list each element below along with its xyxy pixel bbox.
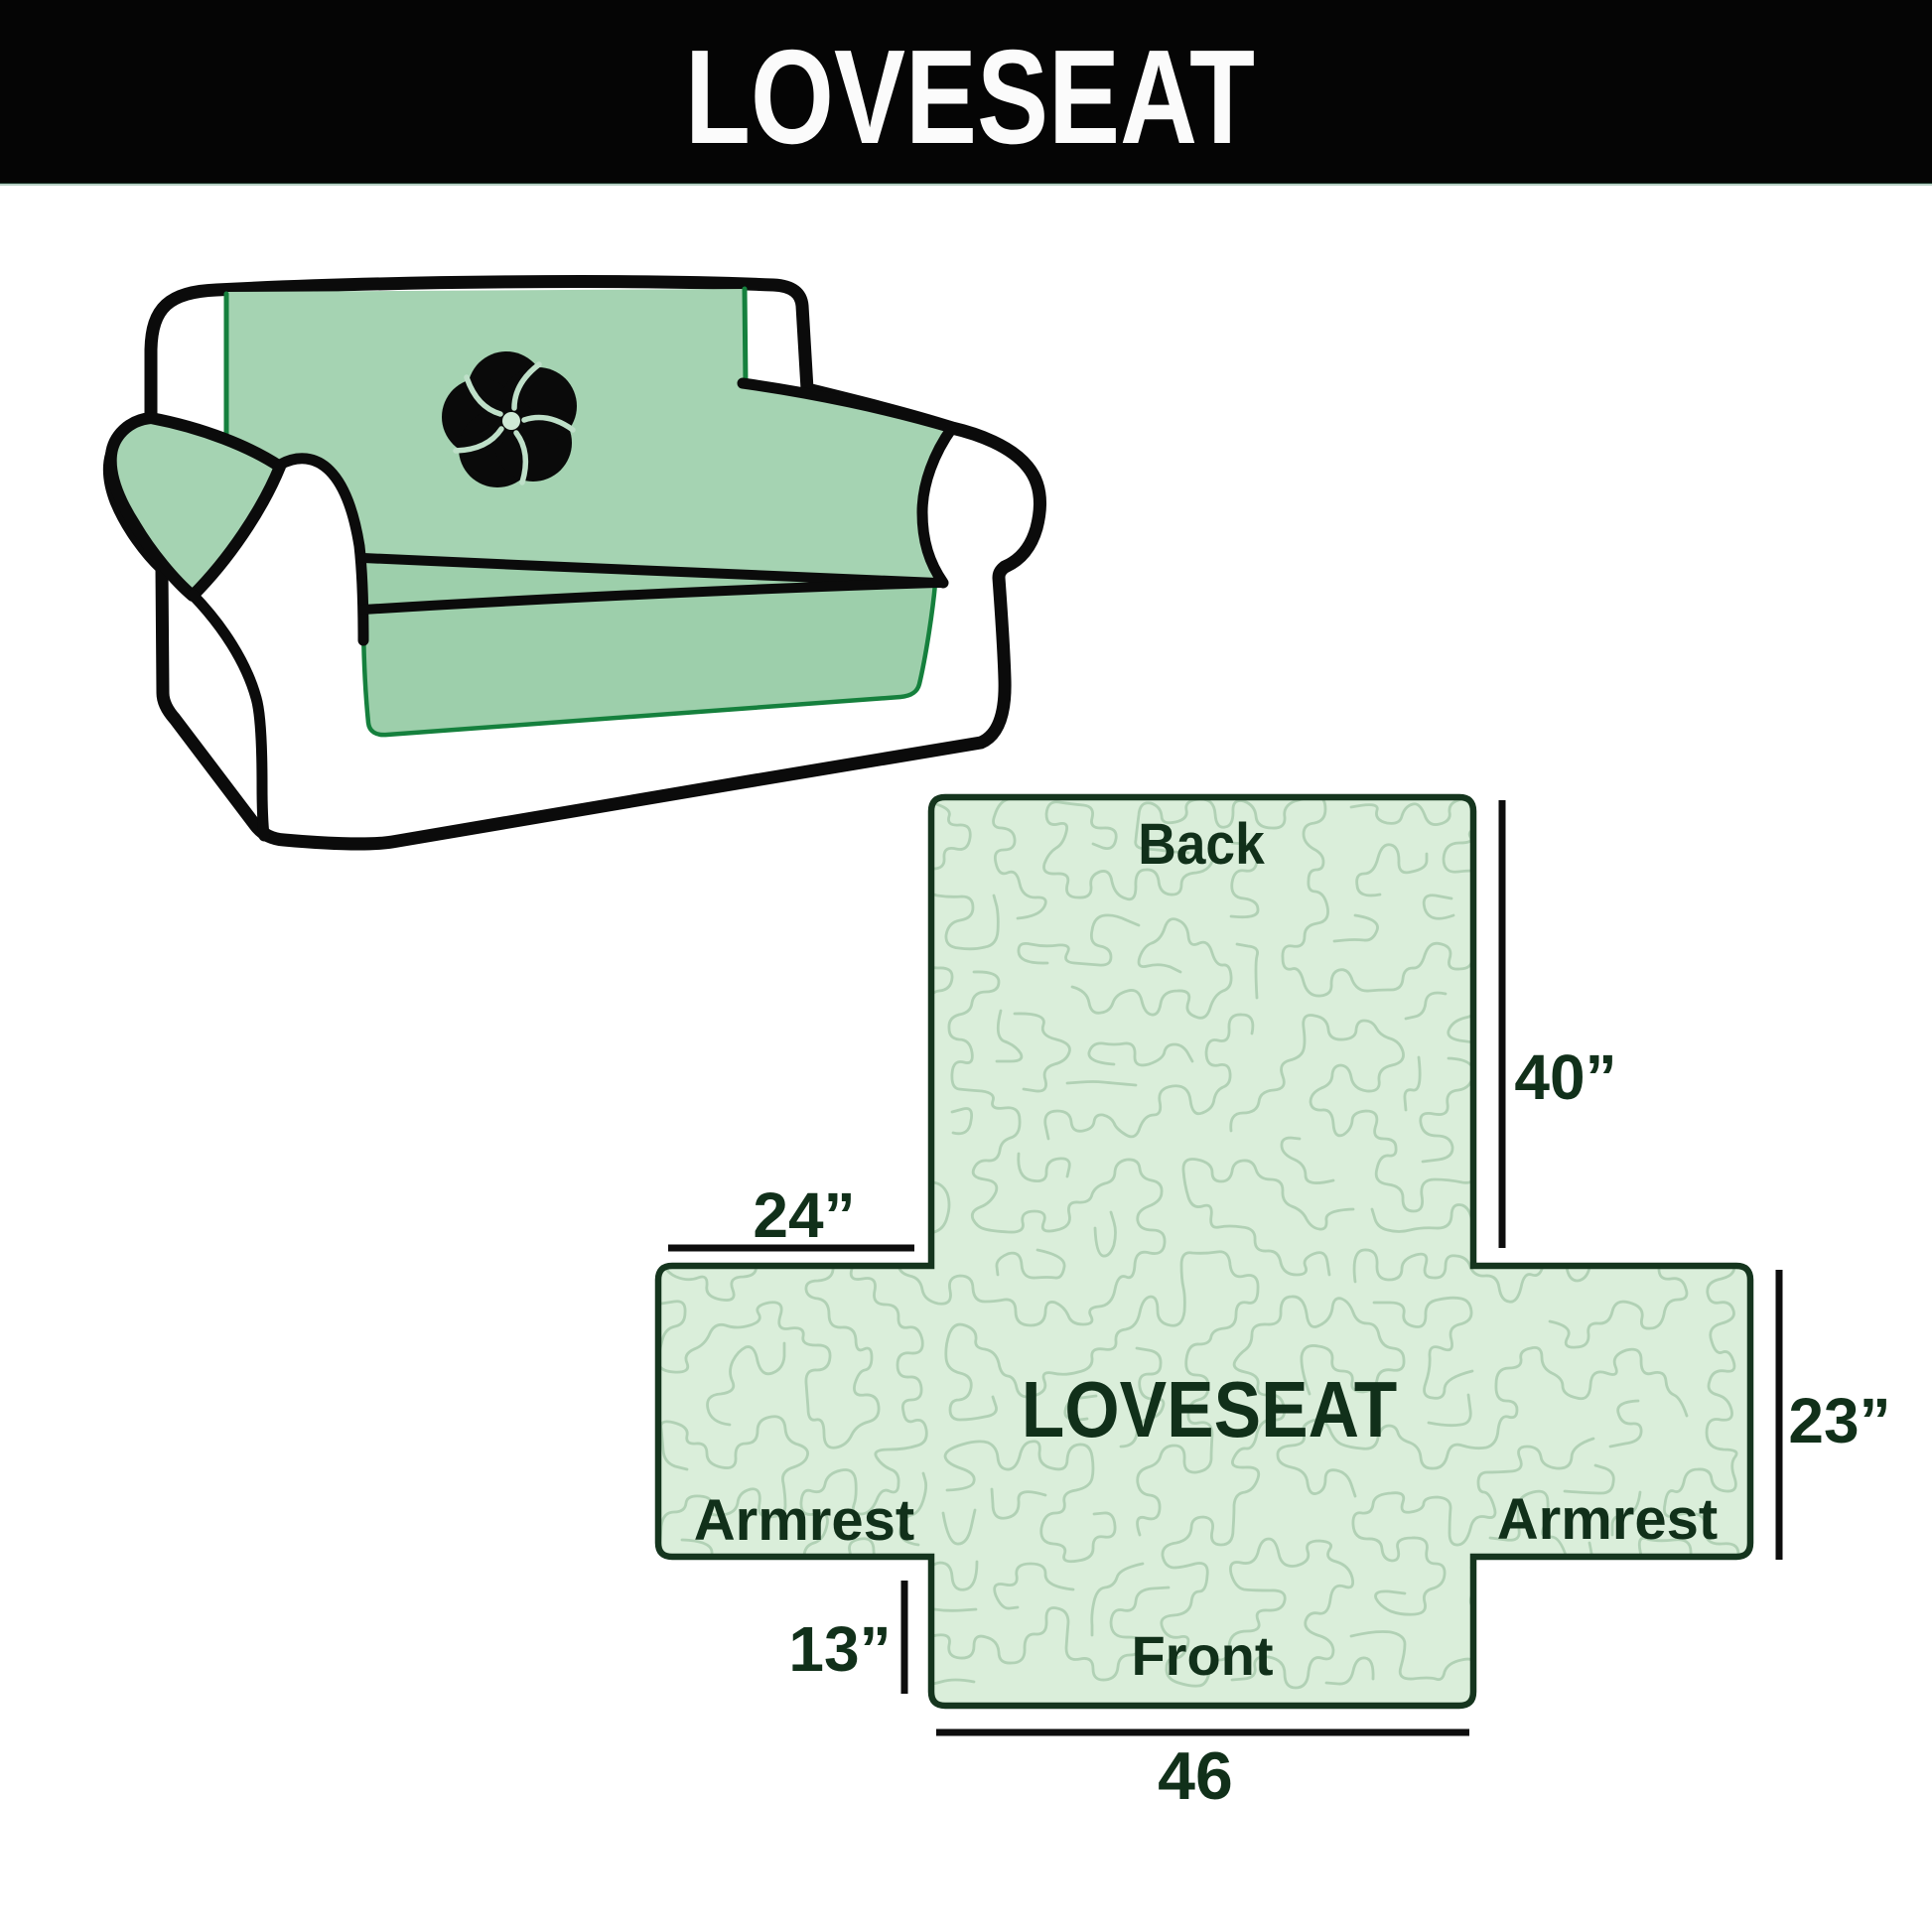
svg-text:LOVESEAT: LOVESEAT	[1022, 1365, 1397, 1454]
svg-text:LOVESEAT: LOVESEAT	[685, 21, 1255, 171]
svg-text:46: 46	[1158, 1738, 1233, 1814]
svg-text:24”: 24”	[753, 1179, 855, 1251]
svg-text:23”: 23”	[1788, 1385, 1890, 1456]
svg-text:Front: Front	[1131, 1624, 1273, 1687]
svg-text:Back: Back	[1138, 812, 1266, 877]
svg-text:Armrest: Armrest	[1497, 1487, 1718, 1552]
svg-text:Armrest: Armrest	[694, 1488, 914, 1553]
svg-text:13”: 13”	[788, 1613, 891, 1685]
svg-text:40”: 40”	[1514, 1041, 1616, 1113]
